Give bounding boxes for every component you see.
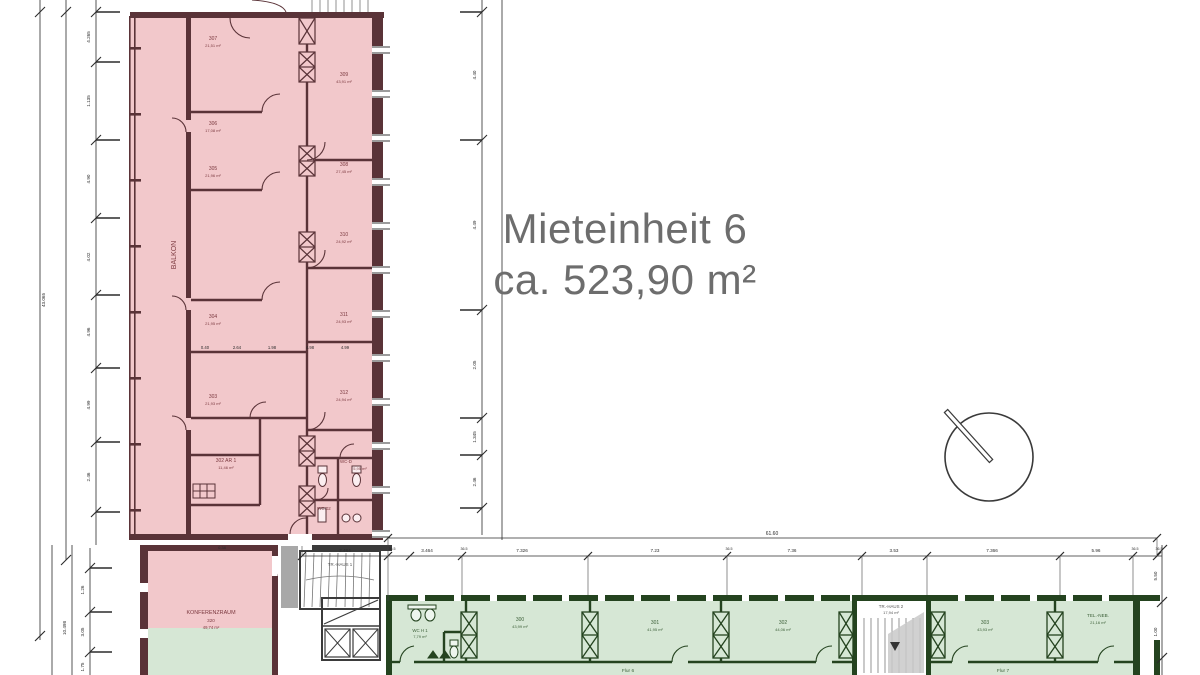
dim-label: 3.05	[80, 627, 85, 636]
room-area: 43,99 m²	[512, 624, 528, 629]
wc-label: WC H 1	[412, 628, 428, 633]
dim-total-label: 10.498	[62, 621, 67, 635]
room-area: 21,51 m²	[205, 43, 221, 48]
room-label: 303	[981, 620, 990, 626]
dim-label: 36.5	[461, 547, 468, 551]
left-dimension-chain	[35, 0, 120, 641]
dim-label: 2.46	[472, 477, 477, 486]
bottom-wing-dimension-labels: 2.464 36.5 3.464 36.5 7.326 7.23 36.5 7.…	[339, 531, 1162, 553]
room-area: 27,45 m²	[336, 169, 352, 174]
unit-title: Mieteinheit 6 ca. 523,90 m²	[455, 203, 795, 305]
dim-label: 2.05	[472, 360, 477, 369]
room-area: 24,93 m²	[336, 319, 352, 324]
passage-dim: 0.38	[218, 545, 227, 550]
bottom-wing-dimension-chain	[298, 534, 1162, 601]
room-label: 312	[340, 390, 349, 396]
room-area: 21,16 m²	[1090, 620, 1106, 625]
dim-label: 0.40	[201, 345, 210, 350]
dim-label: 4.99	[341, 345, 350, 350]
room-area: 43,91 m²	[336, 79, 352, 84]
dim-label: 5.50	[1153, 571, 1158, 580]
wc-area: 7,79 m²	[413, 634, 427, 639]
room-label: 311	[340, 312, 348, 318]
dim-label: 4.40	[472, 70, 477, 79]
left-bottom-dimension-labels: 1.26 3.05 1.75 10.498	[62, 585, 85, 671]
room-area: 44,06 m²	[775, 627, 791, 632]
stair-elevator-block: TR.-HAUS 1	[278, 540, 392, 675]
stairwell-1: TR.-HAUS 1	[300, 551, 380, 609]
room-label: TEL.-NEB.	[1087, 613, 1109, 618]
dim-label: 1.00	[1153, 627, 1158, 636]
wc-label: WC.02	[317, 506, 331, 511]
room-area: 11,46 m²	[218, 465, 234, 470]
room-label: 301	[651, 620, 660, 626]
room-label: 302 AR 1	[216, 458, 237, 464]
unit-title-line1: Mieteinheit 6	[455, 203, 795, 254]
dim-label: 2.464	[339, 548, 351, 553]
stair2-label: TR.-HAUS 2	[879, 604, 904, 609]
stairwell-2: TR.-HAUS 2 17,94 m²	[857, 601, 926, 675]
room-area: 43,93 m²	[977, 627, 993, 632]
dim-label: 1.98	[268, 345, 277, 350]
right-dimension-labels: 5.50 1.00	[1153, 571, 1158, 636]
dim-label: 7.366	[986, 548, 998, 553]
dim-label: 4.98	[306, 345, 315, 350]
room-label: 307	[209, 36, 218, 42]
dim-label: 1.26	[80, 585, 85, 594]
dim-label: 2.64	[233, 345, 242, 350]
room-label: 304	[209, 314, 218, 320]
dim-label: 36.5	[1132, 547, 1139, 551]
wc-area: 5,95 m²	[353, 466, 367, 471]
stair1-label: TR.-HAUS 1	[328, 562, 353, 567]
room-label: 300	[516, 617, 525, 623]
room-label: 309	[340, 72, 349, 78]
conference-number: 320	[207, 618, 215, 623]
dim-label: 1.135	[86, 95, 91, 107]
dim-label: 2.46	[86, 472, 91, 481]
dim-label: 36.5	[389, 547, 396, 551]
room-area: 17,08 m²	[205, 128, 221, 133]
stair2-area: 17,94 m²	[883, 610, 899, 615]
dim-label: 4.99	[86, 400, 91, 409]
dim-label: 1.75	[80, 662, 85, 671]
green-wing: TR.-HAUS 2 17,94 m² WC H 1 7,79 m² 300 4…	[386, 595, 1160, 675]
dim-label: 36.5	[726, 547, 733, 551]
dim-label: 5.96	[1092, 548, 1101, 553]
dim-label: 3.53	[890, 548, 899, 553]
conference-area: 49,74 m²	[203, 625, 220, 630]
dim-label: 1.345	[472, 431, 477, 443]
room-label: 306	[209, 121, 218, 127]
dim-label: 4.02	[86, 252, 91, 261]
room-label: 308	[340, 162, 349, 168]
room-area: 21,96 m²	[205, 173, 221, 178]
floor-plan-page: 4.265 1.135 4.90 4.02 4.96 4.99 2.46 43.…	[0, 0, 1200, 675]
wc-label: WC-D	[340, 459, 352, 464]
room-label: 302	[779, 620, 788, 626]
conference-room: 0.38 KONFERENZRAUM 320 49,74 m²	[140, 545, 296, 675]
dim-label: 7.326	[516, 548, 528, 553]
dim-label: 4.90	[86, 174, 91, 183]
room-area: 24,94 m²	[336, 397, 352, 402]
room-label: 305	[209, 166, 218, 172]
room-area: 24,92 m²	[336, 239, 352, 244]
north-arrow	[944, 410, 1033, 502]
balcony-label: BALKON	[171, 241, 178, 269]
room-label: 310	[340, 232, 349, 238]
dim-label: 4.96	[86, 327, 91, 336]
room-area: 21,95 m²	[205, 321, 221, 326]
room-label: 303	[209, 394, 218, 400]
dim-total-label: 43.065	[41, 293, 46, 307]
pink-wing: 0.40 2.64 1.98 4.98 4.99 BALKON 307 21,5…	[129, 0, 392, 540]
unit-title-line2: ca. 523,90 m²	[455, 254, 795, 305]
room-area: 41,95 m²	[647, 627, 663, 632]
dim-label: 4.265	[86, 31, 91, 43]
corridor-label: Flur 7	[997, 668, 1010, 674]
floor-plan-drawing: 4.265 1.135 4.90 4.02 4.96 4.99 2.46 43.…	[0, 0, 1200, 675]
dim-total-label: 61.60	[766, 531, 779, 537]
dim-label: 7.23	[651, 548, 660, 553]
dim-label: 7.36	[788, 548, 797, 553]
corridor-label: Flur 6	[622, 668, 635, 674]
room-area: 21,93 m²	[205, 401, 221, 406]
conference-label: KONFERENZRAUM	[186, 610, 236, 616]
dim-label: 3.464	[421, 548, 433, 553]
